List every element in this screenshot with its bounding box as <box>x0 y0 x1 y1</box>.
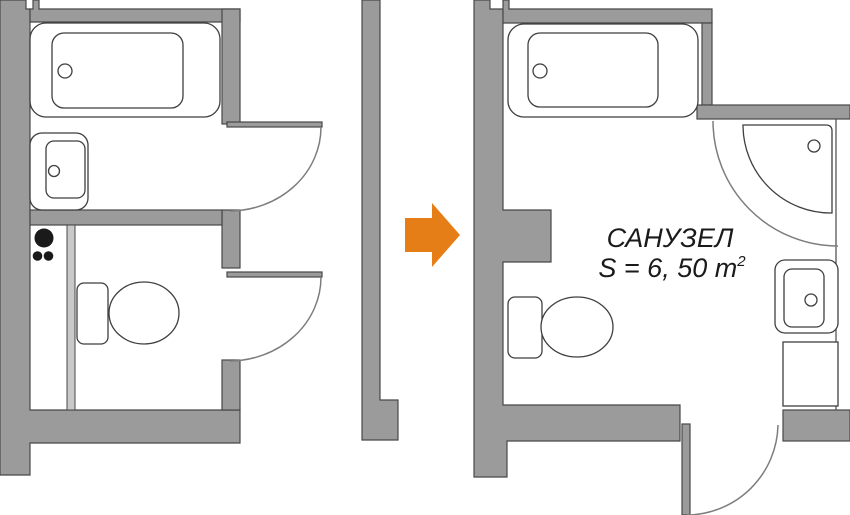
toilet-tank-icon <box>508 297 542 358</box>
before-plan <box>0 0 322 475</box>
door-arc-upper <box>230 127 321 211</box>
cabinet-icon <box>783 342 838 406</box>
corridor-wall <box>362 0 398 440</box>
wall-right-lower <box>222 360 240 410</box>
sink-faucet-icon <box>49 166 60 177</box>
wall-lower-right <box>783 410 850 441</box>
door-leaf-upper <box>227 122 322 127</box>
room-area-label: S = 6, 50 m2 <box>598 253 746 283</box>
wall-divider <box>30 210 222 225</box>
sink-faucet-icon <box>805 294 817 306</box>
room-area-superscript: 2 <box>736 253 746 270</box>
toilet-bowl-icon <box>109 282 179 344</box>
bathtub-drain-icon <box>533 64 547 78</box>
bathtub-drain-icon <box>58 64 72 78</box>
pipe-shaft-partition <box>67 225 75 410</box>
wall-top <box>503 0 712 23</box>
after-plan-fixtures <box>508 24 838 406</box>
floor-plan-svg: САНУЗЕЛ S = 6, 50 m2 <box>0 0 850 515</box>
sink-basin <box>784 269 824 327</box>
transform-arrow-icon <box>405 203 460 267</box>
pipe-riser-small-2 <box>44 251 54 261</box>
toilet-bowl-icon <box>541 297 613 357</box>
wall-right-middle <box>222 210 240 268</box>
wall-right-upper <box>222 9 240 124</box>
door-leaf-bottom <box>682 424 690 515</box>
wall-top <box>30 0 240 22</box>
corner-shower-tray-icon <box>743 125 832 213</box>
door-arc-lower <box>230 277 321 361</box>
wall-upper-right <box>697 105 850 119</box>
door-arc-bottom <box>687 425 778 515</box>
door-leaf-lower <box>227 272 322 277</box>
middle-section <box>362 0 460 440</box>
after-plan: САНУЗЕЛ S = 6, 50 m2 <box>474 0 850 515</box>
before-plan-door-arcs <box>230 127 321 361</box>
shower-drain-icon <box>808 140 820 152</box>
pipe-risers-icon <box>33 229 54 261</box>
wall-right-of-tub <box>702 23 712 105</box>
room-name-label: САНУЗЕЛ <box>607 223 734 253</box>
pipe-riser-large <box>35 229 54 248</box>
floor-plan-canvas: САНУЗЕЛ S = 6, 50 m2 <box>0 0 850 515</box>
before-plan-fixtures <box>30 23 220 344</box>
pipe-riser-small-1 <box>33 251 43 261</box>
toilet-tank-icon <box>77 283 108 344</box>
room-area-value: S = 6, 50 m <box>598 253 737 283</box>
